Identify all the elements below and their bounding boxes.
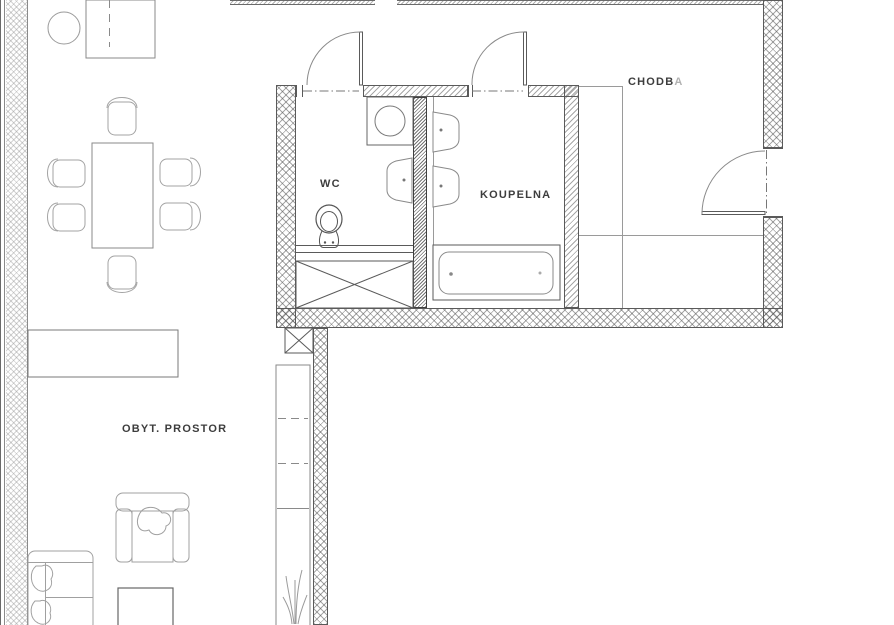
chair-seat [160,203,192,230]
bathtub [433,245,560,300]
wc-room-label: WC [320,178,341,190]
plant [283,570,307,624]
wc-door-swing-arc [307,32,360,85]
koupelna-door-swing-arc [472,32,524,85]
chair-seat [53,160,85,187]
entry-door [702,150,767,215]
washing-machine [367,97,413,145]
floor-plan: WC KOUPELNA CHODBA OBYT. PROSTOR [0,0,894,625]
wardrobe [86,0,155,58]
wc-door-leaf [360,32,363,85]
armchair [116,493,189,562]
sofa-pillow [31,565,52,591]
chair-seat [160,159,192,186]
sideboard [28,330,178,377]
chair-seat [53,204,85,231]
koupelna-sink-1 [433,112,459,152]
koupelna-room-label-text: KOUPELNA [480,189,551,201]
entry-door-leaf [702,212,765,215]
wc-installation-shaft [296,246,413,309]
wc-room-label-text: WC [320,178,341,190]
dining-table [92,143,153,248]
round-chair [48,12,80,44]
koupelna-door [472,32,527,91]
chodba-room-label-suffix: A [674,76,683,88]
chair-back [107,282,137,293]
living-room-label-text: OBYT. PROSTOR [122,423,227,435]
living-room-label: OBYT. PROSTOR [122,423,227,435]
hallway-boundary-lines [579,86,763,308]
kitchen-cabinet [276,365,310,625]
chodba-room-label-main: CHODB [628,76,674,88]
chodba-room-label: CHODBA [628,76,684,88]
chair-seat [108,256,136,289]
sofa [28,551,93,625]
small-installation-shaft [285,328,313,353]
chair-seat [108,102,136,135]
coffee-table [118,588,173,625]
koupelna-sink-2 [433,166,459,207]
toilet [316,205,342,248]
sofa-pillow [31,600,51,624]
plan-linework [0,0,894,625]
wc-door [303,32,363,91]
koupelna-door-leaf [524,32,527,85]
koupelna-room-label: KOUPELNA [480,189,551,201]
wc-sink [387,158,412,203]
entry-door-swing-arc [702,151,765,214]
